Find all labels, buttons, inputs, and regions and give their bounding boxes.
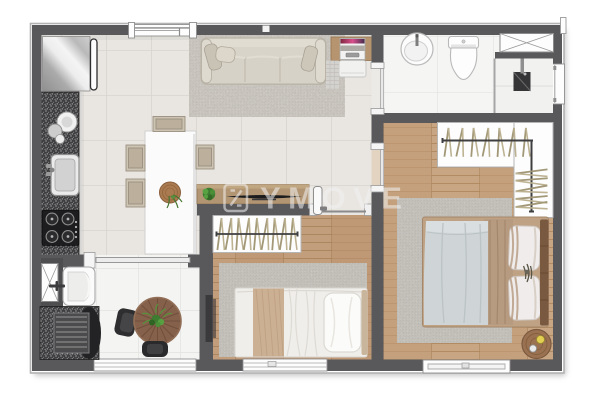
- svg-text:YMOVE: YMOVE: [260, 181, 409, 216]
